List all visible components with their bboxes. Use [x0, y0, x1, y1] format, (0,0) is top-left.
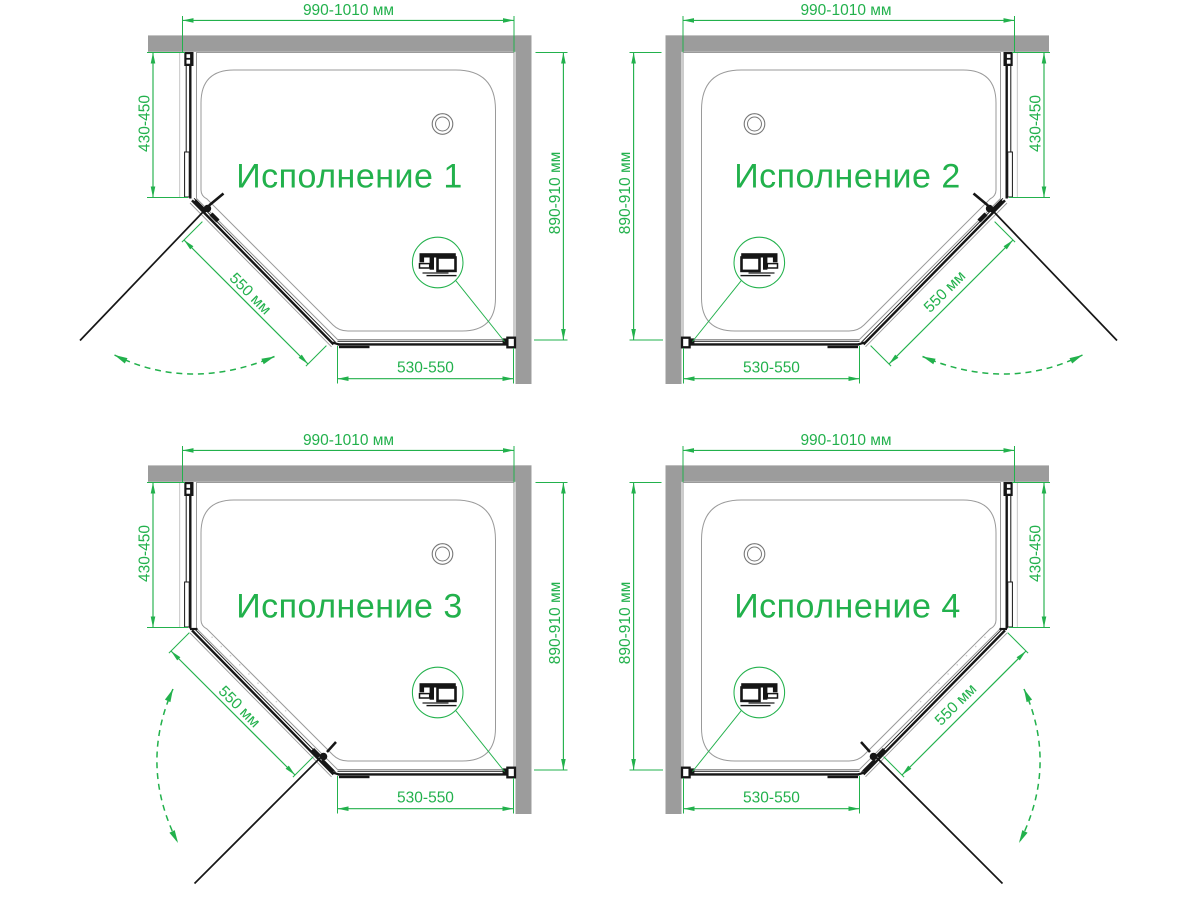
- svg-text:890-910 мм: 890-910 мм: [617, 152, 634, 235]
- svg-text:890-910 мм: 890-910 мм: [617, 582, 634, 665]
- svg-text:430-450: 430-450: [137, 525, 154, 582]
- svg-text:890-910 мм: 890-910 мм: [547, 152, 564, 235]
- svg-text:890-910 мм: 890-910 мм: [547, 582, 564, 665]
- svg-text:Исполнение 3: Исполнение 3: [236, 588, 463, 626]
- svg-text:550 мм: 550 мм: [932, 681, 980, 729]
- svg-text:430-450: 430-450: [137, 95, 154, 152]
- svg-text:530-550: 530-550: [397, 359, 454, 376]
- svg-text:990-1010 мм: 990-1010 мм: [800, 432, 891, 449]
- svg-text:990-1010 мм: 990-1010 мм: [303, 2, 394, 19]
- svg-text:Исполнение 2: Исполнение 2: [734, 158, 961, 196]
- svg-text:550 мм: 550 мм: [215, 683, 263, 731]
- svg-text:530-550: 530-550: [397, 789, 454, 806]
- svg-text:530-550: 530-550: [743, 789, 800, 806]
- svg-text:990-1010 мм: 990-1010 мм: [800, 2, 891, 19]
- svg-text:430-450: 430-450: [1028, 525, 1045, 582]
- svg-text:530-550: 530-550: [743, 359, 800, 376]
- svg-text:430-450: 430-450: [1028, 95, 1045, 152]
- svg-text:990-1010 мм: 990-1010 мм: [303, 432, 394, 449]
- svg-text:Исполнение 1: Исполнение 1: [236, 158, 463, 196]
- svg-text:Исполнение 4: Исполнение 4: [734, 588, 961, 626]
